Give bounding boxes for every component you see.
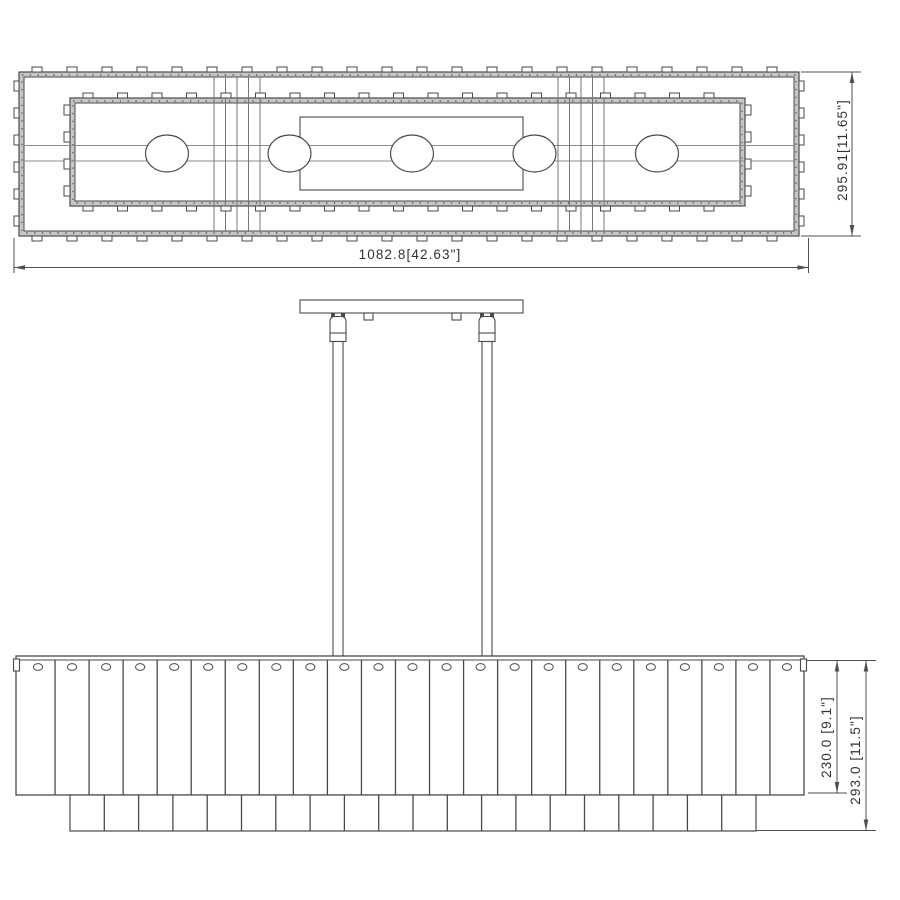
rod-collar xyxy=(479,333,495,342)
frame-tab xyxy=(172,236,182,241)
frame-tab xyxy=(799,189,804,199)
frame-tab xyxy=(14,189,19,199)
frame-tab xyxy=(325,206,335,211)
top-view: 1082.8[42.63"] 295.91[11.65"] xyxy=(14,67,861,273)
frame-tab xyxy=(137,67,147,72)
frame-tab xyxy=(359,206,369,211)
frame-tab xyxy=(394,206,404,211)
frame-tab xyxy=(428,206,438,211)
panel-hole xyxy=(306,664,315,671)
frame-tab xyxy=(207,236,217,241)
bulb xyxy=(636,135,679,172)
frame-tab xyxy=(463,93,473,98)
frame-tab xyxy=(601,206,611,211)
shade-end-clip xyxy=(14,659,20,671)
bulb xyxy=(146,135,189,172)
dimension-arrow xyxy=(835,661,840,672)
panel-hole xyxy=(170,664,179,671)
panel-hole xyxy=(33,664,42,671)
frame-tab xyxy=(172,67,182,72)
bulb xyxy=(391,135,434,172)
panel-hole xyxy=(272,664,281,671)
frame-tab xyxy=(799,135,804,145)
dimension-arrow xyxy=(798,265,809,270)
frame-tab xyxy=(14,135,19,145)
frame-tab xyxy=(67,67,77,72)
frame-tab xyxy=(152,206,162,211)
frame-tab xyxy=(187,93,197,98)
bulb xyxy=(268,135,311,172)
frame-tab xyxy=(256,206,266,211)
frame-tab xyxy=(732,67,742,72)
frame-tab xyxy=(767,67,777,72)
frame-tab xyxy=(487,67,497,72)
panel-hole xyxy=(442,664,451,671)
frame-tab xyxy=(522,67,532,72)
dimension-arrow xyxy=(835,782,840,793)
frame-tab xyxy=(118,206,128,211)
dimension-arrow xyxy=(14,265,25,270)
dimension-label-overall-width: 1082.8[42.63"] xyxy=(359,247,462,262)
frame-tab xyxy=(64,159,70,169)
frame-tab xyxy=(627,236,637,241)
frame-tab xyxy=(290,93,300,98)
frame-tab xyxy=(277,67,287,72)
ceiling-canopy xyxy=(300,300,523,313)
panel-hole xyxy=(340,664,349,671)
swivel-knuckle xyxy=(479,317,495,334)
frame-tab xyxy=(382,67,392,72)
frame-tab xyxy=(325,93,335,98)
frame-tab xyxy=(14,81,19,91)
frame-tab xyxy=(221,93,231,98)
frame-tab xyxy=(799,108,804,118)
frame-tab xyxy=(207,67,217,72)
frame-tab xyxy=(152,93,162,98)
frame-tab xyxy=(137,236,147,241)
dimension-label-overall-depth: 295.91[11.65"] xyxy=(835,99,850,201)
frame-tab xyxy=(102,236,112,241)
frame-tab xyxy=(14,216,19,226)
frame-tab xyxy=(497,206,507,211)
panel-hole xyxy=(646,664,655,671)
frame-tab xyxy=(452,67,462,72)
frame-tab xyxy=(242,236,252,241)
frame-tab xyxy=(635,93,645,98)
frame-tab xyxy=(566,93,576,98)
hanger-rod xyxy=(330,313,346,657)
hanger-rod xyxy=(479,313,495,657)
frame-tab xyxy=(14,162,19,172)
frame-tab xyxy=(566,206,576,211)
frame-tab xyxy=(697,67,707,72)
dimension-label-overall-height: 293.0 [11.5"] xyxy=(848,715,863,804)
frame-tab xyxy=(532,206,542,211)
dimension-label-shade-height: 230.0 [9.1"] xyxy=(819,696,834,778)
rod-collar xyxy=(330,333,346,342)
panel-hole xyxy=(238,664,247,671)
dimension-arrow xyxy=(864,820,869,831)
shade-end-clip xyxy=(801,659,807,671)
panel-hole xyxy=(748,664,757,671)
panel-hole xyxy=(374,664,383,671)
frame-tab xyxy=(662,236,672,241)
frame-tab xyxy=(14,108,19,118)
frame-tab xyxy=(799,81,804,91)
frame-tab xyxy=(627,67,637,72)
rod-stem xyxy=(482,342,492,657)
frame-tab xyxy=(312,236,322,241)
frame-tab xyxy=(592,67,602,72)
frame-tab xyxy=(312,67,322,72)
panel-hole xyxy=(136,664,145,671)
rod-stem xyxy=(333,342,343,657)
frame-tab xyxy=(64,105,70,115)
frame-tab xyxy=(452,236,462,241)
frame-tab xyxy=(242,67,252,72)
frame-tab xyxy=(601,93,611,98)
frame-tab xyxy=(428,93,438,98)
frame-tab xyxy=(83,206,93,211)
panel-hole xyxy=(544,664,553,671)
frame-tab xyxy=(394,93,404,98)
frame-tab xyxy=(347,67,357,72)
side-view: 230.0 [9.1"] 293.0 [11.5"] xyxy=(14,300,877,831)
panel-hole xyxy=(408,664,417,671)
panel-hole xyxy=(782,664,791,671)
drawing-canvas: 1082.8[42.63"] 295.91[11.65"] 230.0 [9.1… xyxy=(0,0,900,900)
frame-tab xyxy=(799,162,804,172)
frame-tab xyxy=(704,206,714,211)
frame-tab xyxy=(767,236,777,241)
panel-hole xyxy=(204,664,213,671)
frame-tab xyxy=(32,67,42,72)
frame-tab xyxy=(277,236,287,241)
frame-tab xyxy=(635,206,645,211)
canopy-clip xyxy=(364,313,373,320)
swivel-knuckle xyxy=(330,317,346,334)
frame-tab xyxy=(67,236,77,241)
frame-tab xyxy=(670,206,680,211)
panel-hole xyxy=(476,664,485,671)
frame-tab xyxy=(417,236,427,241)
frame-tab xyxy=(557,67,567,72)
frame-tab xyxy=(704,93,714,98)
panel-hole xyxy=(714,664,723,671)
frame-tab xyxy=(732,236,742,241)
frame-tab xyxy=(799,216,804,226)
frame-tab xyxy=(745,159,751,169)
panel-hole xyxy=(680,664,689,671)
frame-tab xyxy=(745,186,751,196)
frame-tab xyxy=(221,206,231,211)
frame-tab xyxy=(417,67,427,72)
frame-tab xyxy=(32,236,42,241)
frame-tab xyxy=(662,67,672,72)
frame-tab xyxy=(102,67,112,72)
frame-tab xyxy=(557,236,567,241)
shade-panels xyxy=(16,656,804,831)
frame-tab xyxy=(532,93,542,98)
frame-tab xyxy=(382,236,392,241)
frame-tab xyxy=(745,132,751,142)
dimension-arrow xyxy=(850,72,855,83)
frame-tab xyxy=(359,93,369,98)
frame-tab xyxy=(83,93,93,98)
canopy-clip xyxy=(452,313,461,320)
frame-tab xyxy=(497,93,507,98)
panel-hole xyxy=(510,664,519,671)
upper-shade-band xyxy=(16,656,804,795)
panel-hole xyxy=(578,664,587,671)
frame-tab xyxy=(487,236,497,241)
bulb xyxy=(513,135,556,172)
panel-hole xyxy=(67,664,76,671)
frame-tab xyxy=(187,206,197,211)
frame-tab xyxy=(64,132,70,142)
frame-tab xyxy=(592,236,602,241)
frame-tab xyxy=(118,93,128,98)
dimension-arrow xyxy=(850,225,855,236)
frame-tab xyxy=(670,93,680,98)
dimension-arrow xyxy=(864,661,869,672)
drawing-sheet: 1082.8[42.63"] 295.91[11.65"] 230.0 [9.1… xyxy=(0,0,900,900)
frame-tab xyxy=(745,105,751,115)
frame-tab xyxy=(256,93,266,98)
frame-tab xyxy=(522,236,532,241)
hanger-rods xyxy=(330,313,495,657)
frame-tab xyxy=(290,206,300,211)
frame-tab xyxy=(64,186,70,196)
frame-tab xyxy=(697,236,707,241)
frame-tab xyxy=(347,236,357,241)
panel-hole xyxy=(612,664,621,671)
panel-hole xyxy=(102,664,111,671)
frame-tab xyxy=(463,206,473,211)
